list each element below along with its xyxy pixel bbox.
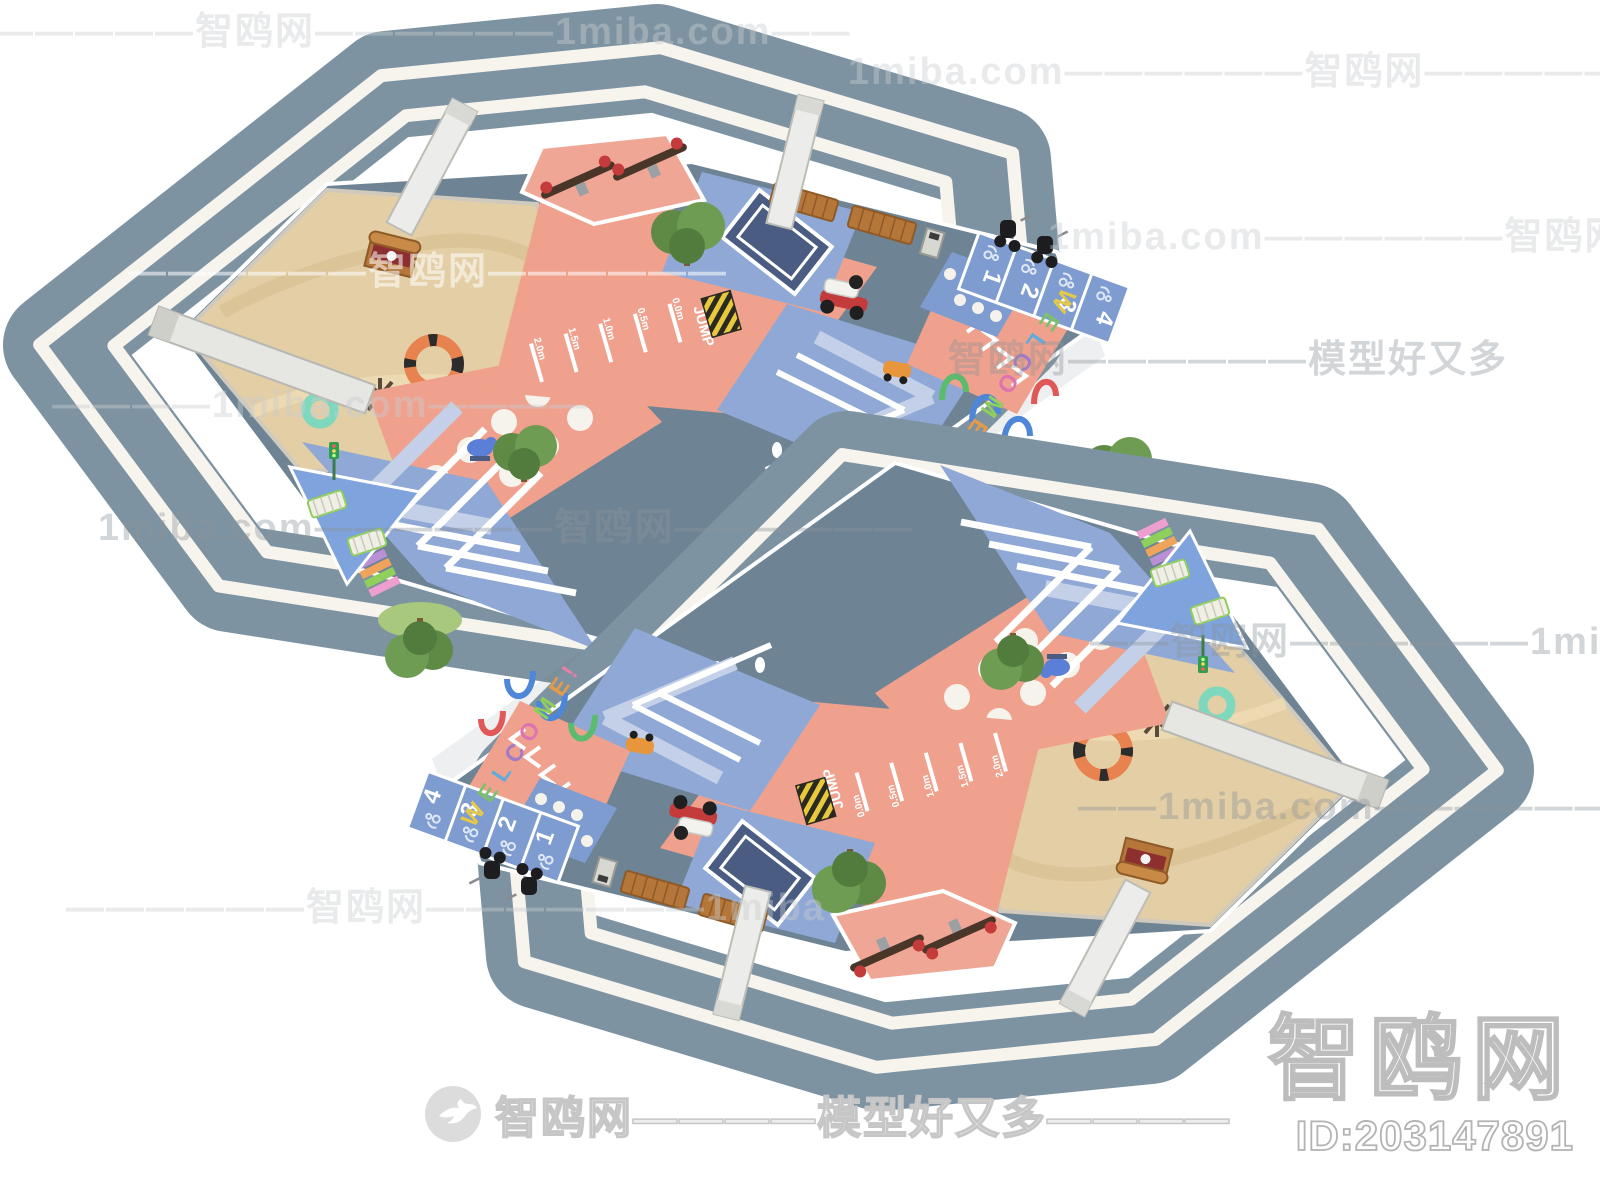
corner-brand-text: 智鸥网 xyxy=(1268,1014,1574,1106)
bird-logo-icon xyxy=(425,1086,481,1142)
model-id-text: ID:203147891 xyxy=(1268,1112,1574,1160)
footer-brand: 智鸥网————模型好又多———— xyxy=(425,1082,1231,1146)
footer-brand-text: 智鸥网————模型好又多———— xyxy=(495,1082,1231,1146)
corner-mark: 智鸥网 ID:203147891 xyxy=(1268,1014,1574,1160)
screenshot-stage: 2.0m 1.5m 1.0m 0.5m 0.0m JUMP xyxy=(0,0,1600,1200)
